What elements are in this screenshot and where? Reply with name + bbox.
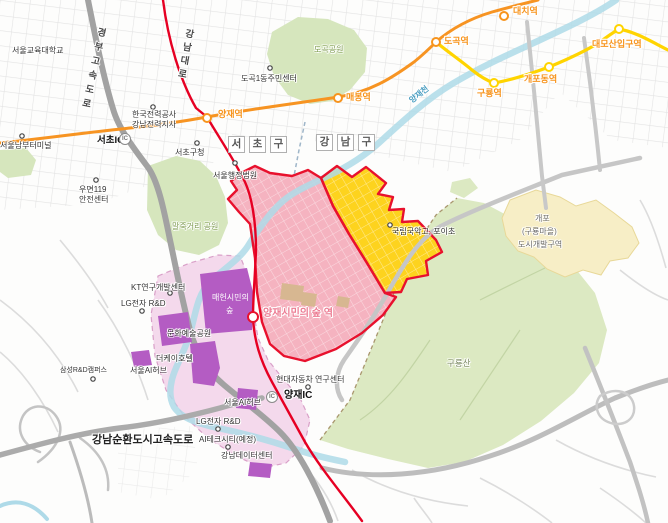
label-maeheon-forest-line2: 숲 bbox=[226, 306, 233, 315]
daemosan-station-marker bbox=[615, 25, 623, 33]
label-yangjae-station: 양재역 bbox=[218, 109, 243, 119]
label-maebong-station: 매봉역 bbox=[346, 92, 371, 102]
label-kt-rnd: KT연구개발센터 bbox=[131, 283, 185, 292]
label-umyeon119-line2: 안전센터 bbox=[79, 195, 108, 204]
maebong-station-marker bbox=[334, 94, 342, 102]
yangjae-station-marker bbox=[203, 114, 211, 122]
label-hyundai-research: 현대자동차 연구센터 bbox=[276, 375, 344, 384]
label-samsung-rnd: 삼성R&D캠퍼스 bbox=[60, 367, 107, 375]
label-seoul-ai-hub-east: 서울AI허브 bbox=[224, 398, 261, 407]
label-gaepodong-station: 개포동역 bbox=[524, 74, 557, 84]
label-daechi-station: 대치역 bbox=[513, 6, 538, 16]
ai-hub-block-west bbox=[131, 350, 152, 367]
gangnam-char-2: 남 bbox=[337, 134, 354, 151]
gaepodong-station-marker bbox=[545, 63, 553, 71]
label-seoul-ai-hub-west: 서울AI허브 bbox=[130, 366, 167, 375]
seocho-char-1: 서 bbox=[228, 136, 245, 153]
label-seocho-gu: 서 초 구 bbox=[228, 136, 287, 153]
small-green-poi-2 bbox=[450, 178, 478, 198]
label-kepco-line2: 강남전력지사 bbox=[132, 120, 176, 129]
label-gangnam-datacenter: 강남데이터센터 bbox=[221, 451, 273, 460]
guryong-station-marker bbox=[490, 79, 498, 87]
label-thek-hotel: 더케이호텔 bbox=[156, 354, 193, 363]
label-maljukgeori-park: 말죽거리 공원 bbox=[172, 222, 218, 231]
daechi-station-marker bbox=[500, 12, 508, 20]
label-daemosan-station: 대모산입구역 bbox=[592, 39, 642, 49]
yangjae-ic-badge: IC bbox=[266, 391, 278, 403]
citizens-forest-station-marker bbox=[248, 312, 258, 322]
label-gangnam-gu: 강 남 구 bbox=[316, 134, 375, 151]
gangnam-char-1: 강 bbox=[316, 134, 333, 151]
ramp-road-south bbox=[70, 442, 92, 523]
label-ai-tech-city: AI테크시티(예정) bbox=[199, 435, 256, 444]
label-gangnam-beltway: 강남순환도시고속도로 bbox=[92, 434, 193, 447]
label-dogok1-center: 도곡1동주민센터 bbox=[241, 74, 297, 83]
label-gaepo-zone-line3: 도시개발구역 bbox=[518, 240, 562, 249]
stream-southwest bbox=[0, 502, 47, 519]
label-citizens-forest-station: 양재시민의 숲 역 bbox=[263, 308, 333, 320]
label-lg-rnd: LG전자 R&D bbox=[121, 299, 166, 308]
label-lg-rnd-2: LG전자 R&D bbox=[196, 417, 241, 426]
label-umyeon119-line1: 우면119 bbox=[79, 185, 106, 194]
label-admin-court: 서울행정법원 bbox=[213, 171, 257, 180]
label-guryongsan: 구룡산 bbox=[447, 359, 470, 369]
beltway-ramp-loop bbox=[20, 406, 60, 462]
label-maeheon-forest-line1: 매헌시민의 bbox=[212, 293, 249, 302]
seocho-char-3: 구 bbox=[270, 136, 287, 153]
label-seocho-office: 서초구청 bbox=[175, 148, 204, 157]
gangnam-char-3: 구 bbox=[358, 134, 375, 151]
label-seoul-national-univ-education: 서울교육대학교 bbox=[12, 46, 64, 55]
label-gukak-school: 국립국악고, 포이초 bbox=[392, 227, 455, 236]
seocho-ic-badge: IC bbox=[119, 133, 131, 145]
label-gaepo-zone-line1: 개포 bbox=[535, 214, 550, 223]
label-dogok-station: 도곡역 bbox=[444, 36, 469, 46]
label-dogok-park: 도곡공원 bbox=[314, 45, 343, 54]
thek-hotel-block bbox=[190, 341, 220, 386]
label-nambu-terminal: 서울남부터미널 bbox=[0, 141, 52, 150]
label-kepco-line1: 한국전력공사 bbox=[132, 110, 176, 119]
map-canvas[interactable]: 서울교육대학교 경부고속도로 강남대로 한국전력공사 강남전력지사 서울남부터미… bbox=[0, 0, 668, 523]
label-guryong-station: 구룡역 bbox=[477, 88, 502, 98]
dogok-station-marker bbox=[432, 38, 440, 46]
datacenter-block bbox=[248, 462, 272, 478]
southeast-road bbox=[585, 348, 648, 523]
label-yangjae-ic: 양재IC bbox=[284, 390, 312, 402]
label-gaepo-zone-line2: (구룡마을) bbox=[522, 227, 557, 236]
seocho-char-2: 초 bbox=[249, 136, 266, 153]
label-culture-art-park: 문화예술공원 bbox=[167, 329, 211, 338]
